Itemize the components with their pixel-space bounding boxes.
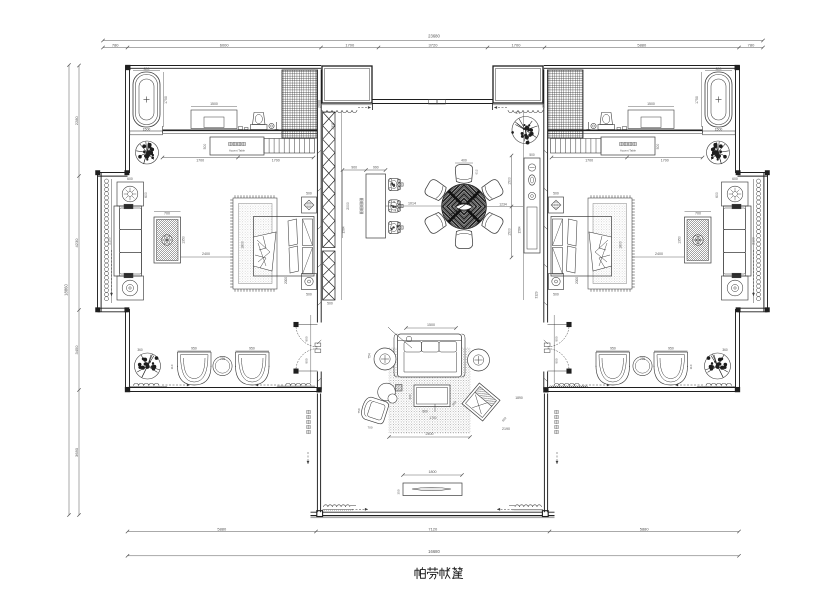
svg-text:1584: 1584 — [342, 226, 346, 233]
svg-text:2000: 2000 — [318, 100, 322, 108]
svg-text:1500: 1500 — [647, 102, 655, 106]
svg-text:780: 780 — [112, 42, 119, 47]
svg-text:500: 500 — [529, 153, 535, 157]
svg-text:360: 360 — [722, 348, 728, 352]
svg-text:500: 500 — [306, 192, 312, 196]
svg-text:725: 725 — [640, 357, 646, 361]
svg-text:5880: 5880 — [637, 42, 647, 47]
svg-text:1700: 1700 — [272, 158, 280, 162]
svg-text:3129: 3129 — [535, 291, 539, 298]
svg-text:600: 600 — [144, 192, 148, 198]
svg-text:1350: 1350 — [182, 236, 186, 244]
svg-text:2000: 2000 — [284, 277, 288, 284]
svg-text:23680: 23680 — [428, 34, 440, 39]
svg-text:400: 400 — [461, 159, 467, 163]
svg-text:2400: 2400 — [202, 252, 210, 256]
svg-text:2000: 2000 — [575, 277, 579, 284]
svg-text:1700: 1700 — [661, 158, 669, 162]
svg-text:Accent Table: Accent Table — [620, 149, 636, 153]
svg-text:110: 110 — [170, 364, 174, 369]
svg-text:500: 500 — [327, 302, 333, 306]
svg-text:1584: 1584 — [518, 226, 522, 233]
svg-text:600: 600 — [408, 394, 412, 399]
svg-text:1800: 1800 — [429, 470, 437, 474]
svg-text:360: 360 — [137, 348, 143, 352]
svg-text:700: 700 — [367, 426, 372, 430]
svg-text:2000: 2000 — [346, 202, 350, 210]
svg-text:800: 800 — [144, 67, 150, 71]
svg-text:800: 800 — [555, 336, 559, 341]
svg-text:990: 990 — [373, 166, 379, 170]
svg-text:6000: 6000 — [220, 42, 230, 47]
svg-text:2400: 2400 — [655, 252, 663, 256]
svg-text:1700: 1700 — [585, 158, 593, 162]
svg-text:800: 800 — [555, 358, 559, 363]
svg-text:600: 600 — [732, 177, 738, 181]
svg-text:950: 950 — [191, 347, 197, 351]
svg-text:1700: 1700 — [345, 42, 355, 47]
svg-text:800: 800 — [305, 358, 309, 363]
svg-text:2400: 2400 — [426, 432, 434, 436]
svg-text:371: 371 — [515, 111, 521, 115]
svg-text:2100: 2100 — [752, 237, 756, 245]
svg-text:2280: 2280 — [74, 116, 79, 126]
svg-text:2331: 2331 — [331, 122, 335, 129]
svg-text:1700: 1700 — [429, 416, 436, 420]
svg-text:900: 900 — [351, 166, 357, 170]
svg-text:750: 750 — [357, 408, 361, 413]
svg-text:5880: 5880 — [217, 526, 227, 531]
svg-text:1700: 1700 — [196, 158, 204, 162]
svg-text:350: 350 — [397, 489, 401, 494]
svg-text:1500: 1500 — [507, 228, 511, 236]
svg-text:7120: 7120 — [428, 526, 438, 531]
svg-text:725: 725 — [220, 357, 226, 361]
svg-text:3450: 3450 — [74, 345, 79, 355]
svg-text:1700: 1700 — [512, 42, 522, 47]
svg-text:700: 700 — [164, 212, 170, 216]
svg-text:500: 500 — [306, 293, 312, 297]
svg-text:Accent Table: Accent Table — [229, 149, 245, 153]
svg-text:2100: 2100 — [108, 237, 112, 245]
svg-text:500: 500 — [422, 410, 428, 414]
svg-text:1500: 1500 — [427, 323, 435, 327]
svg-text:600: 600 — [715, 192, 719, 198]
svg-text:1800: 1800 — [241, 241, 245, 249]
svg-text:754: 754 — [368, 353, 372, 359]
svg-text:780: 780 — [748, 42, 755, 47]
svg-text:3680: 3680 — [74, 447, 79, 457]
svg-text:16680: 16680 — [428, 549, 440, 554]
svg-text:1750: 1750 — [695, 96, 699, 104]
svg-text:1750: 1750 — [164, 96, 168, 104]
svg-text:950: 950 — [249, 347, 255, 351]
svg-text:950: 950 — [610, 347, 616, 351]
svg-text:800: 800 — [716, 67, 722, 71]
svg-text:5880: 5880 — [640, 526, 650, 531]
svg-text:500: 500 — [553, 293, 559, 297]
svg-text:600: 600 — [127, 177, 133, 181]
svg-text:1014: 1014 — [408, 202, 416, 206]
svg-text:1350: 1350 — [678, 236, 682, 244]
svg-text:800: 800 — [305, 336, 309, 341]
svg-text:500: 500 — [203, 144, 207, 150]
svg-text:3720: 3720 — [429, 42, 439, 47]
svg-text:1890: 1890 — [515, 396, 523, 400]
svg-text:2190: 2190 — [502, 427, 510, 431]
svg-text:1500: 1500 — [507, 177, 511, 185]
svg-text:500: 500 — [656, 144, 660, 150]
svg-text:4230: 4230 — [74, 238, 79, 248]
svg-text:1500: 1500 — [210, 102, 218, 106]
svg-text:500: 500 — [553, 192, 559, 196]
svg-text:18860: 18860 — [64, 284, 69, 296]
svg-text:110: 110 — [689, 364, 693, 369]
svg-text:1234: 1234 — [499, 202, 507, 206]
svg-text:1800: 1800 — [619, 241, 623, 249]
svg-text:612: 612 — [475, 169, 479, 174]
svg-text:700: 700 — [695, 212, 701, 216]
svg-text:950: 950 — [668, 347, 674, 351]
